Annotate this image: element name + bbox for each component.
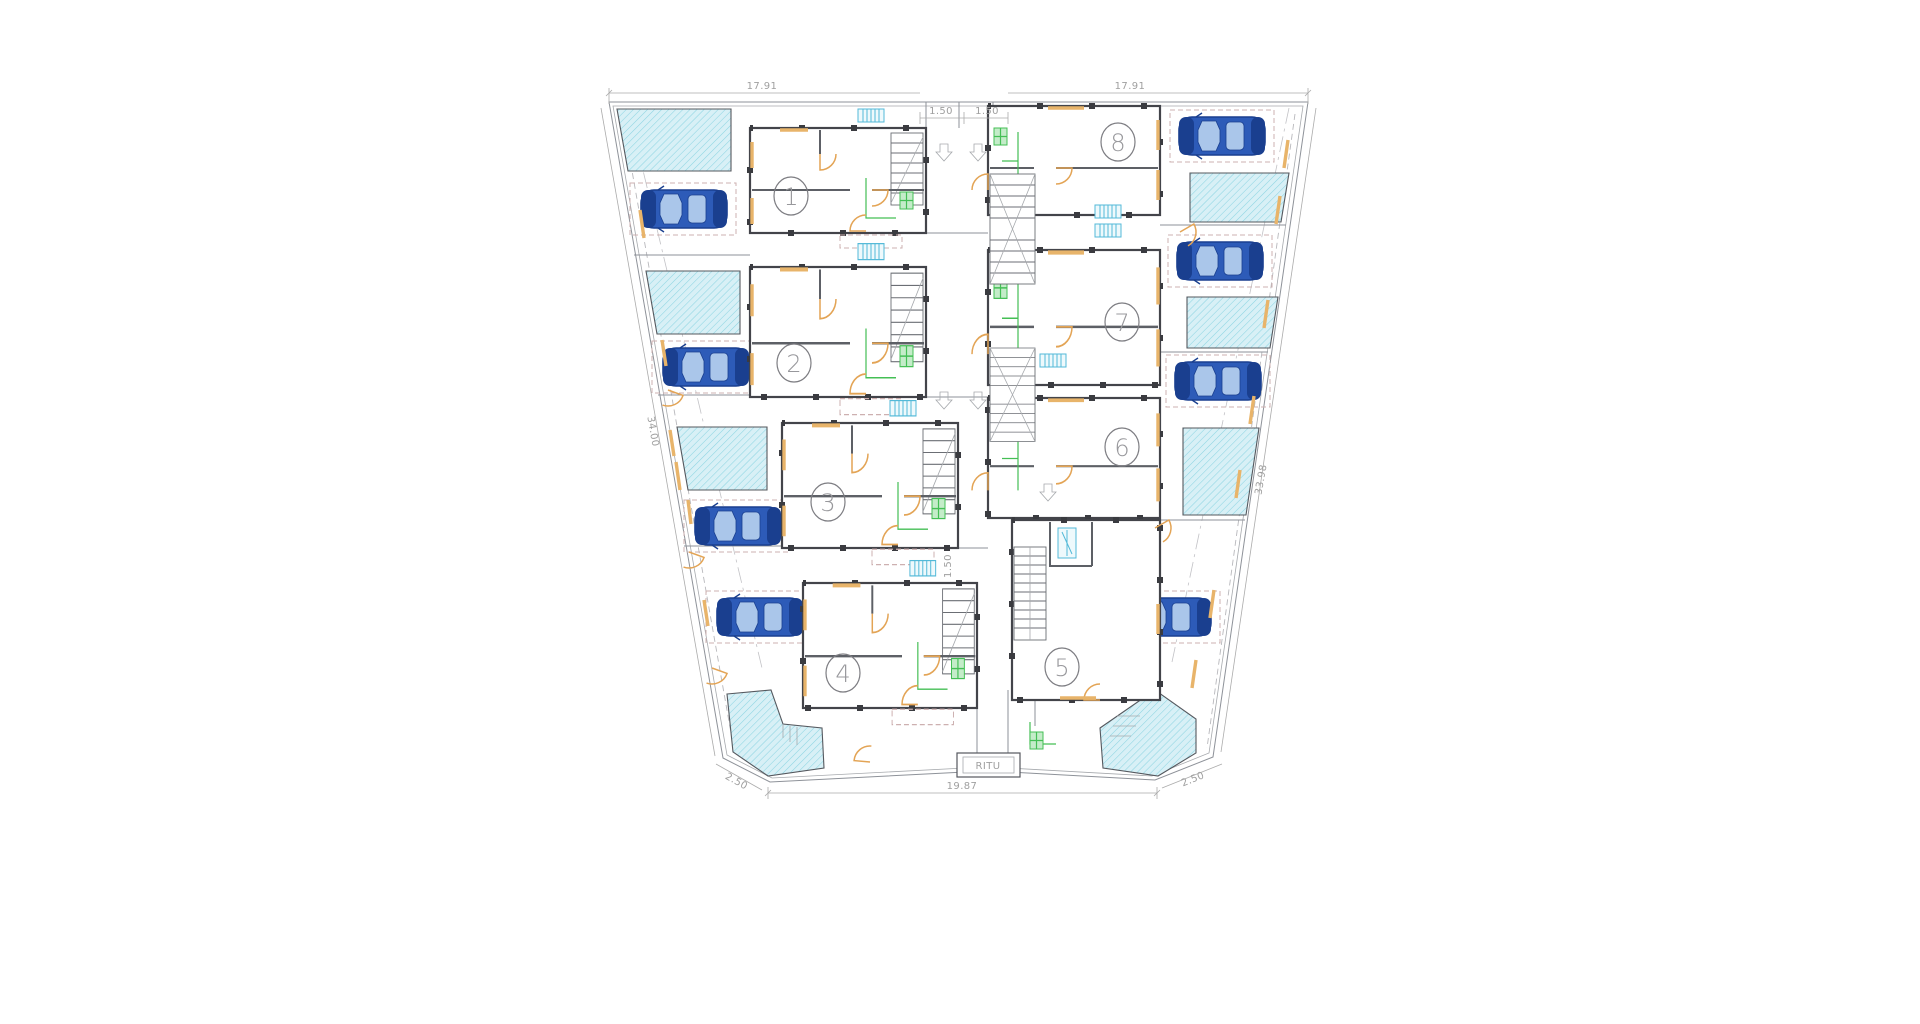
pool-3 [677, 427, 767, 490]
svg-text:8: 8 [1110, 129, 1125, 157]
site-plan-drawing: 1 2 3 4 5 6 7 8 17.91 17.91 1.50 1.50 [0, 0, 1920, 1024]
unit-blocks [750, 106, 1160, 749]
entry-arrow-icon [936, 392, 952, 409]
street-label-box: RITU [957, 753, 1020, 777]
dim-bottom-corner-right: 2.50 [1180, 770, 1206, 789]
unit-5-stair [1014, 547, 1046, 640]
unit-3-block [782, 401, 958, 565]
entry-arrow-icon [970, 392, 986, 409]
dim-setback-left: 1.50 [929, 106, 953, 117]
floor-plan-canvas: 1 2 3 4 5 6 7 8 17.91 17.91 1.50 1.50 [0, 0, 1920, 1024]
pool-5 [1100, 690, 1196, 776]
gate-door-swing [854, 745, 871, 762]
car-icon [641, 186, 727, 232]
dim-bottom-corner-left: 2.50 [723, 771, 749, 792]
pool-6 [1183, 428, 1259, 515]
dim-side-left: 34.00 [644, 416, 660, 448]
unit-4-block [803, 561, 977, 725]
dim-top-right: 17.91 [1115, 81, 1146, 92]
svg-text:4: 4 [835, 660, 850, 688]
pool-8 [1190, 173, 1289, 222]
street-label: RITU [976, 761, 1001, 772]
dim-bottom: 19.87 [947, 781, 978, 792]
entry-arrow-icon [936, 144, 952, 161]
svg-text:7: 7 [1114, 309, 1129, 337]
car-icon [695, 503, 781, 549]
pool-1 [617, 109, 731, 171]
car-icon [663, 344, 749, 390]
stair-shaft-lower [990, 348, 1035, 442]
stair-shaft-upper [990, 174, 1035, 284]
dim-setback-right: 1.50 [975, 106, 999, 117]
car-icon [1179, 113, 1265, 159]
svg-text:3: 3 [820, 489, 835, 517]
car-icon [1175, 358, 1261, 404]
gate-door-swing [684, 552, 705, 573]
dim-side-right: 33.98 [1253, 464, 1269, 496]
pool-2 [646, 271, 740, 334]
entry-arrow-icon [970, 144, 986, 161]
dim-passage: 1.50 [943, 554, 954, 578]
dim-top-left: 17.91 [747, 81, 778, 92]
svg-text:5: 5 [1054, 654, 1069, 682]
svg-text:2: 2 [786, 350, 801, 378]
svg-text:1: 1 [783, 183, 798, 211]
unit-1-block [750, 109, 926, 248]
car-icon [717, 594, 803, 640]
unit-2-block [750, 244, 926, 415]
svg-text:6: 6 [1114, 434, 1129, 462]
